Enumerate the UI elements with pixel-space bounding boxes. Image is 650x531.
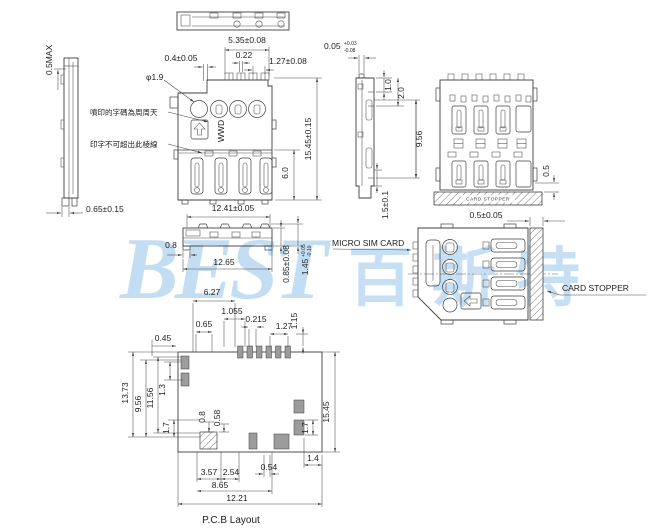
- dim-side-standoff: 0.65±0.15: [86, 204, 124, 214]
- card-bottom-mid: [448, 139, 526, 157]
- card-bottom-slots-lower: [452, 161, 531, 187]
- dim-pcb-865: 8.65: [212, 480, 229, 490]
- dim-pcb-956: 9.56: [133, 395, 143, 412]
- dim-front-group-width: 5.35±0.08: [228, 35, 266, 45]
- dim-bottom-wall: 0.85±0.08: [281, 245, 291, 283]
- dim-right-top-step: 1.0: [383, 79, 393, 91]
- dim-pcb-1545: 15.45: [321, 401, 331, 423]
- dim-pcb-357: 3.57: [201, 467, 218, 477]
- dim-pcb-1156: 11.56: [145, 387, 155, 408]
- dim-bottom-outer-width: 12.65: [213, 257, 235, 267]
- card-bottom-slots-upper: [452, 106, 531, 134]
- dim-pcb-1221: 12.21: [226, 493, 248, 503]
- dim-right-foot: 1.5±0.1: [380, 191, 390, 220]
- card-bottom-view: CARD STOPPER 0.5: [434, 74, 559, 205]
- card-bottom-row1: [450, 95, 531, 102]
- dim-front-step: 0.4±0.05: [164, 53, 197, 63]
- dim-pcb-254: 2.54: [223, 467, 240, 477]
- dim-stopper-thickness: 0.5±0.05: [469, 210, 502, 220]
- dim-pcb-17-left: 1.7: [161, 422, 171, 434]
- front-lower-slots: [191, 151, 272, 194]
- dim-right-body-depth: 9.56: [414, 130, 424, 147]
- dim-front-height: 15.45±0.15: [303, 117, 313, 160]
- dim-pcb-058: 0.58: [212, 409, 222, 426]
- dim-pcb-0215: 0.215: [245, 314, 267, 324]
- pcb-layout-title: P.C.B Layout: [202, 515, 260, 526]
- label-marking-wwd: WWD: [216, 120, 226, 142]
- front-view: WWD 5.35±0.08 0.4±0.05 0.22: [90, 35, 322, 204]
- dim-front-lower-height: 6.0: [280, 167, 290, 179]
- dim-card-tip-gap: 0.5: [541, 165, 551, 177]
- dim-right-lip-minus: -0.08: [344, 48, 356, 54]
- watermark-cjk: 百斯特: [348, 242, 600, 316]
- right-side-view: 0.05 +0.03 -0.08 1.0 2.0 9.56 1.5±0.1: [324, 41, 424, 219]
- dim-front-slot: 0.22: [236, 50, 253, 60]
- dim-bottom-contact-h: 1.45: [300, 258, 310, 275]
- left-side-view: 0.5MAX 0.65±0.15: [44, 45, 124, 217]
- dim-pcb-054: 0.54: [261, 462, 278, 472]
- dim-pcb-045: 0.45: [155, 333, 172, 343]
- dim-bottom-contact-minus: -0.10: [307, 245, 313, 257]
- dim-right-lip-plus: +0.03: [344, 41, 357, 47]
- dim-pcb-13: 1.3: [157, 384, 167, 396]
- label-card-stopper: CARD STOPPER: [562, 283, 629, 293]
- drawing-canvas: BEST 百斯特 0.5MAX 0.65±0.15: [0, 0, 650, 531]
- dim-right-lip: 0.05: [324, 41, 341, 51]
- dim-side-max: 0.5MAX: [44, 45, 54, 76]
- front-top-contacts: [225, 73, 269, 80]
- pcb-pads: [181, 346, 304, 449]
- dim-front-hole-dia: φ1.9: [146, 72, 164, 82]
- dim-pcb-627: 6.27: [204, 287, 221, 297]
- dim-pcb-14: 1.4: [307, 453, 319, 463]
- dim-pcb-17-right: 1.7: [300, 422, 310, 434]
- card-bottom-top-contacts: [448, 74, 524, 80]
- dim-bottom-inner-width: 12.41±0.05: [212, 203, 255, 213]
- dim-bottom-tab: 0.8: [165, 240, 177, 250]
- engineering-drawing: BEST 百斯特 0.5MAX 0.65±0.15: [0, 0, 650, 531]
- dim-front-pitch: 1.27±0.08: [269, 56, 307, 66]
- dim-right-top-depth: 2.0: [396, 87, 406, 99]
- dim-pcb-1055: 1.055: [221, 306, 243, 316]
- label-micro-sim-card: MICRO SIM CARD: [332, 238, 404, 248]
- dim-pcb-065: 0.65: [196, 319, 213, 329]
- top-plan-view: [177, 12, 289, 30]
- pcb-layout-view: 6.27 1.055 0.65 0.215 1.27 1.15 0.45: [120, 287, 340, 526]
- dim-pcb-08: 0.8: [197, 411, 207, 423]
- marking-arrow-box: [191, 120, 208, 139]
- label-stopper-mark: CARD STOPPER: [466, 197, 510, 203]
- front-holes: [191, 101, 266, 118]
- note-print-limit: 印字不可超出此棱線: [90, 139, 158, 149]
- card-stopper-bar-vertical: [530, 228, 543, 320]
- note-print-code: 噴印的字碼為周周天: [90, 107, 158, 117]
- dim-pcb-1373: 13.73: [120, 382, 130, 404]
- dim-pcb-115: 1.15: [289, 312, 299, 329]
